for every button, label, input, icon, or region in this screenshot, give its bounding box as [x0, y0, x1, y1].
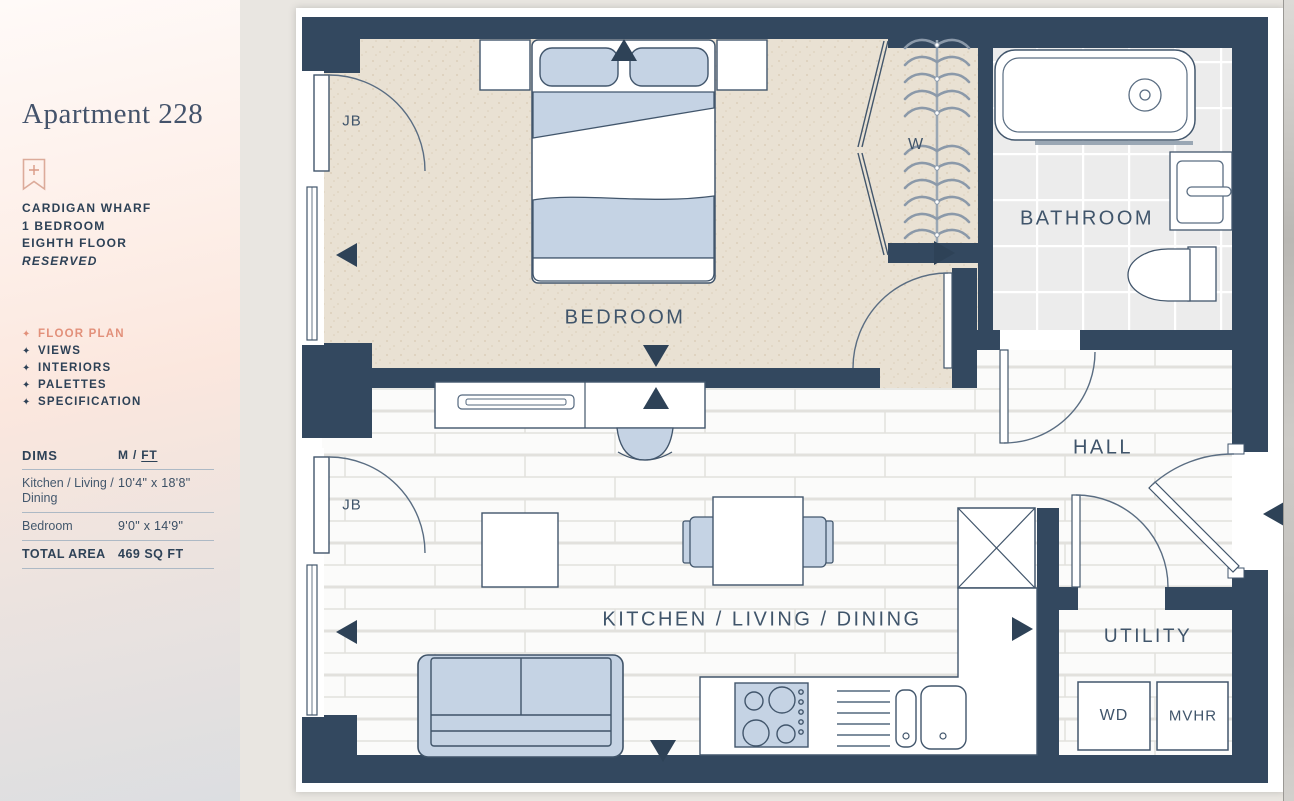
dimensions-table: DIMS M / FT Kitchen / Living / Dining 10…: [22, 442, 214, 569]
nav-item-views[interactable]: ✦ VIEWS: [22, 345, 142, 357]
section-nav: ✦ FLOOR PLAN ✦ VIEWS ✦ INTERIORS ✦ PALET…: [22, 328, 142, 413]
floorplan-sheet: BEDROOM BATHROOM HALL KITCHEN / LIVING /…: [296, 8, 1284, 792]
table-row: Bedroom 9'0" x 14'9": [22, 513, 214, 540]
total-area-label: TOTAL AREA: [22, 547, 118, 562]
nav-bullet-icon: ✦: [22, 346, 38, 357]
bookmark-plus-icon: [22, 179, 46, 196]
right-edge-panel: [1283, 0, 1294, 801]
nav-bullet-icon: ✦: [22, 380, 38, 391]
floorplan-drawing: [300, 15, 1285, 785]
bookmark-save-button[interactable]: [22, 158, 46, 192]
nav-bullet-icon: ✦: [22, 329, 38, 340]
nav-item-interiors[interactable]: ✦ INTERIORS: [22, 362, 142, 374]
apartment-sidebar: Apartment 228 CARDIGAN WHARF 1 BEDROOM E…: [0, 0, 240, 801]
bedroom-count: 1 BEDROOM: [22, 218, 151, 236]
status-badge: RESERVED: [22, 253, 151, 271]
unit-separator: /: [133, 448, 137, 462]
nav-bullet-icon: ✦: [22, 397, 38, 408]
unit-toggle-metric[interactable]: M: [118, 448, 129, 462]
total-area-value: 469 SQ FT: [118, 547, 214, 561]
nav-item-specification[interactable]: ✦ SPECIFICATION: [22, 396, 142, 408]
floor-level: EIGHTH FLOOR: [22, 235, 151, 253]
unit-toggle-imperial[interactable]: FT: [141, 448, 157, 462]
table-row: Kitchen / Living / Dining 10'4" x 18'8": [22, 470, 214, 512]
nav-bullet-icon: ✦: [22, 363, 38, 374]
riser-cupboard: [958, 508, 1035, 588]
nav-item-palettes[interactable]: ✦ PALETTES: [22, 379, 142, 391]
dims-heading: DIMS: [22, 448, 118, 463]
apartment-details: CARDIGAN WHARF 1 BEDROOM EIGHTH FLOOR RE…: [22, 200, 151, 270]
development-name: CARDIGAN WHARF: [22, 200, 151, 218]
page-title: Apartment 228: [22, 98, 203, 131]
total-area-row: TOTAL AREA 469 SQ FT: [22, 541, 214, 568]
unit-toggle: M / FT: [118, 448, 214, 462]
divider: [22, 568, 214, 569]
nav-item-floor-plan[interactable]: ✦ FLOOR PLAN: [22, 328, 142, 340]
